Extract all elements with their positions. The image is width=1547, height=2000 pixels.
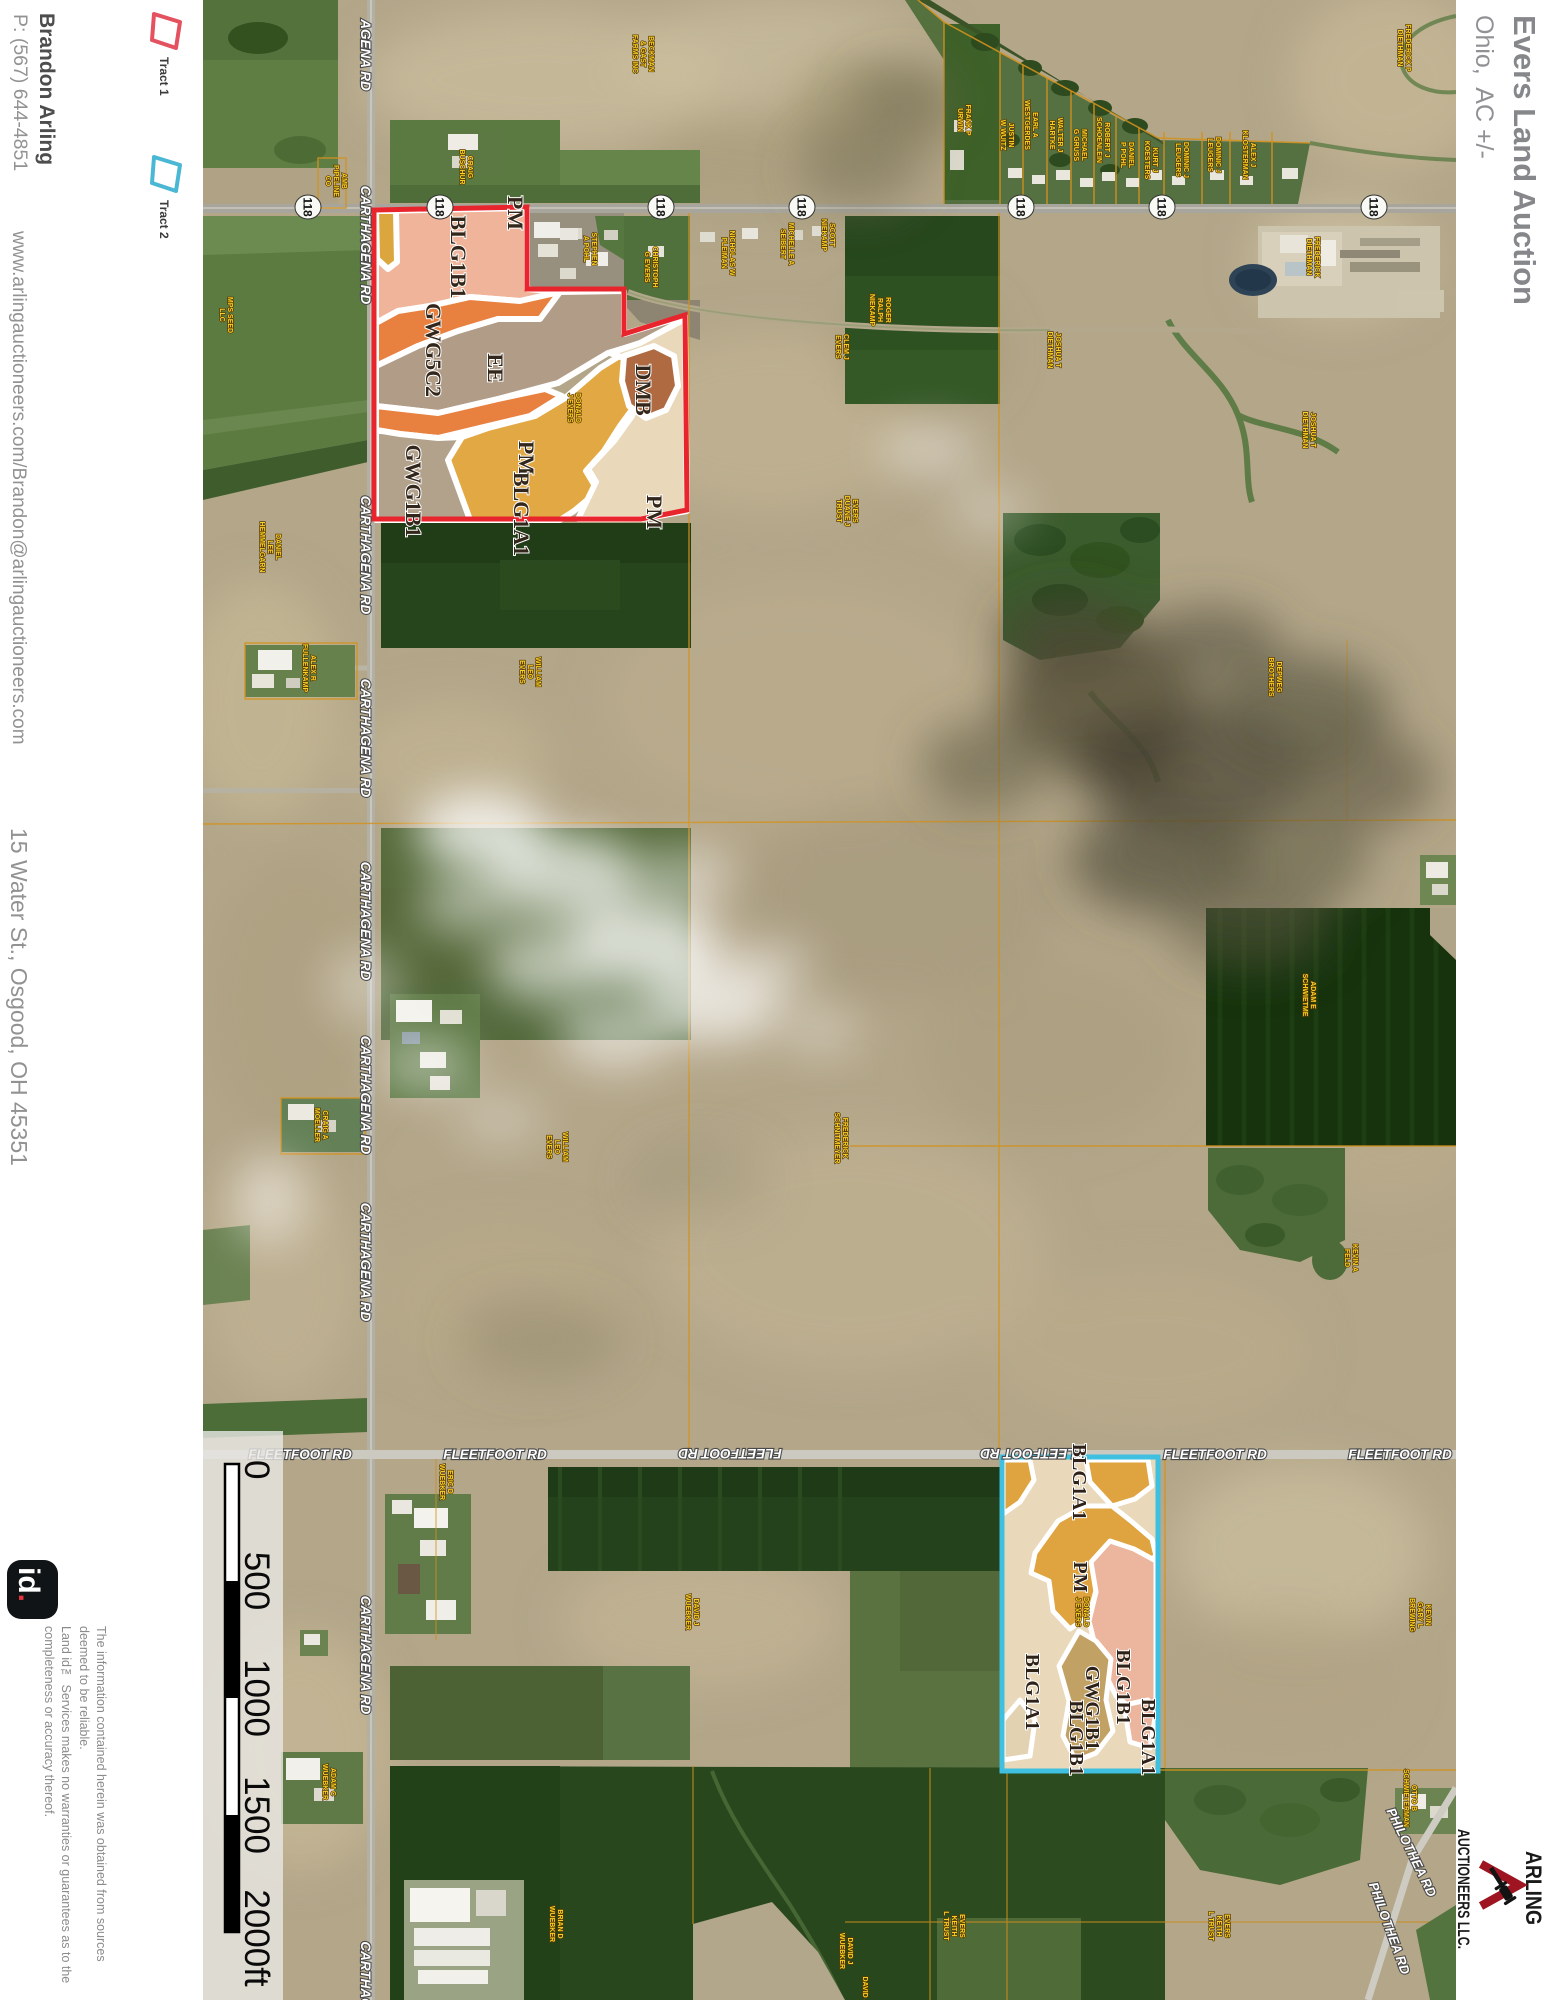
- svg-text:FREDERICKSCHNITMEYER: FREDERICKSCHNITMEYER: [833, 1113, 848, 1164]
- svg-text:CRAIG AMOELLER: CRAIG AMOELLER: [313, 1108, 328, 1142]
- svg-text:118: 118: [1014, 197, 1028, 217]
- svg-text:GWG5C2: GWG5C2: [421, 303, 446, 397]
- svg-text:FLEETFOOT RD: FLEETFOOT RD: [1348, 1447, 1452, 1462]
- svg-text:DEPWEGBROTHERS: DEPWEGBROTHERS: [1267, 657, 1282, 697]
- svg-text:BLG1A1: BLG1A1: [1068, 1444, 1090, 1521]
- svg-text:AGENA RD: AGENA RD: [358, 18, 373, 91]
- svg-text:FREDERICK PDIETHMAN: FREDERICK PDIETHMAN: [1396, 24, 1411, 72]
- svg-text:PM: PM: [514, 441, 539, 475]
- svg-text:ARLING: ARLING: [1521, 1851, 1546, 1925]
- svg-text:STEPHENA POHL: STEPHENA POHL: [582, 232, 597, 265]
- svg-text:DAVID JWUEBKER: DAVID JWUEBKER: [838, 1933, 853, 1969]
- svg-text:ADAM CWUEBKER: ADAM CWUEBKER: [321, 1764, 336, 1800]
- svg-text:500: 500: [237, 1552, 276, 1610]
- svg-text:JOSHUA TDIETHMAN: JOSHUA TDIETHMAN: [1046, 332, 1061, 369]
- svg-text:BLG1B1: BLG1B1: [1112, 1649, 1134, 1725]
- svg-text:CARTHAG: CARTHAG: [358, 1941, 373, 2000]
- svg-text:FLEETFOOT RD: FLEETFOOT RD: [443, 1447, 547, 1462]
- svg-text:AUCTIONEERS LLC.: AUCTIONEERS LLC.: [1454, 1829, 1473, 1949]
- svg-text:118: 118: [1155, 197, 1169, 217]
- svg-text:CARTHAGENA RD: CARTHAGENA RD: [358, 1203, 373, 1322]
- svg-text:DONALDJ EVERS: DONALDJ EVERS: [1074, 1597, 1089, 1627]
- svg-text:118: 118: [654, 197, 668, 217]
- svg-text:DOMINIC JLEUGERS: DOMINIC JLEUGERS: [1206, 137, 1221, 173]
- svg-text:DAVID JWUEBKER: DAVID JWUEBKER: [684, 1594, 699, 1630]
- svg-text:1500: 1500: [237, 1776, 276, 1854]
- svg-text:PM: PM: [503, 196, 528, 230]
- svg-text:BLG1A1: BLG1A1: [509, 472, 534, 556]
- svg-text:BLG1B1: BLG1B1: [1065, 1700, 1087, 1776]
- svg-text:118: 118: [301, 197, 315, 217]
- svg-text:118: 118: [433, 197, 447, 217]
- svg-text:FLEETFOOT RD: FLEETFOOT RD: [678, 1446, 782, 1461]
- svg-text:FRANK PURWIN: FRANK PURWIN: [956, 104, 971, 135]
- svg-text:1000: 1000: [237, 1659, 276, 1737]
- svg-text:EE: EE: [483, 353, 508, 382]
- svg-text:DAVID J: DAVID J: [861, 1976, 868, 2000]
- svg-text:JUSTINW WUITZ: JUSTINW WUITZ: [999, 120, 1014, 151]
- svg-text:EVERSDUANE JTRUST: EVERSDUANE JTRUST: [835, 496, 858, 527]
- svg-text:FREDERICKDIETHMAN: FREDERICKDIETHMAN: [1305, 237, 1320, 278]
- svg-text:DOMINIC JLEUGERS: DOMINIC JLEUGERS: [1174, 142, 1189, 178]
- svg-text:FLEETFOOT RD: FLEETFOOT RD: [1163, 1447, 1267, 1462]
- svg-text:WALTER JHARTKE: WALTER JHARTKE: [1048, 118, 1063, 153]
- svg-text:SCOTTNIEKAMP: SCOTTNIEKAMP: [820, 219, 835, 252]
- svg-text:CARTHAGENA RD: CARTHAGENA RD: [358, 496, 373, 615]
- svg-text:CARTHAGENA RD: CARTHAGENA RD: [358, 1036, 373, 1155]
- svg-text:2000ft: 2000ft: [237, 1889, 276, 1987]
- svg-text:PM: PM: [1069, 1561, 1091, 1592]
- svg-text:CARTHAGENA RD: CARTHAGENA RD: [358, 186, 373, 305]
- svg-text:DONALDJ EVERS: DONALDJ EVERS: [566, 393, 581, 423]
- svg-text:BLG1B1: BLG1B1: [446, 215, 471, 298]
- svg-text:BLG1A1: BLG1A1: [1021, 1654, 1043, 1731]
- svg-text:JOSHUA TDIETHMAN: JOSHUA TDIETHMAN: [1301, 412, 1316, 449]
- svg-text:0: 0: [237, 1460, 276, 1479]
- svg-text:GWG1B1: GWG1B1: [401, 445, 426, 538]
- svg-text:MICHELLE ASEIBERT: MICHELLE ASEIBERT: [779, 223, 794, 266]
- svg-text:DANIELP POHL: DANIELP POHL: [1119, 142, 1134, 169]
- svg-text:BLG1A1: BLG1A1: [1137, 1699, 1159, 1776]
- svg-text:MICHAELG GRUSS: MICHAELG GRUSS: [1072, 129, 1087, 162]
- svg-text:CHRISTOPHG EVERS: CHRISTOPHG EVERS: [643, 246, 658, 287]
- svg-text:CARTHAGENA RD: CARTHAGENA RD: [358, 862, 373, 981]
- svg-text:CARTHAGENA RD: CARTHAGENA RD: [358, 1596, 373, 1715]
- svg-text:118: 118: [1367, 197, 1381, 217]
- svg-text:118: 118: [795, 197, 809, 217]
- svg-text:BRIAN DWUEBKER: BRIAN DWUEBKER: [548, 1906, 563, 1942]
- svg-text:DMB: DMB: [631, 364, 656, 416]
- svg-text:ROGERRALPHNIEKAMP: ROGERRALPHNIEKAMP: [868, 294, 891, 327]
- svg-text:CARTHAGENA RD: CARTHAGENA RD: [358, 679, 373, 798]
- svg-text:CLEM JEVERS: CLEM JEVERS: [834, 334, 849, 360]
- svg-text:PM: PM: [642, 495, 667, 529]
- svg-text:ROBERT JSCHOENLEIN: ROBERT JSCHOENLEIN: [1095, 117, 1110, 163]
